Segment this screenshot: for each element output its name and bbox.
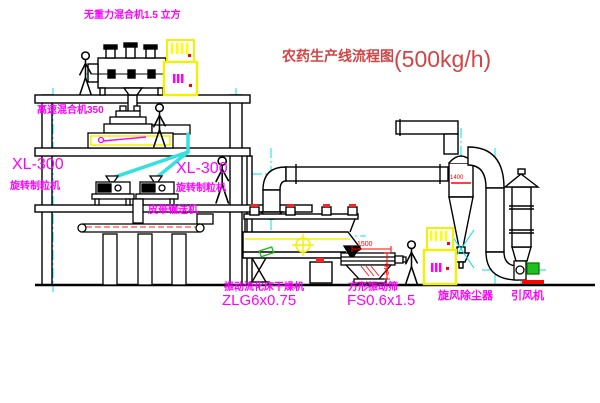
label-dryer-model: ZLG6x0.75 xyxy=(222,293,296,308)
label-granulator-right-name: 旋转制粒机 xyxy=(176,184,226,194)
down-pipe xyxy=(468,147,518,280)
fan-base xyxy=(522,280,544,284)
dim-cyclone-diameter: 1400 xyxy=(450,175,463,181)
title-capacity: (500kg/h) xyxy=(394,46,491,72)
control-cabinet-b xyxy=(424,228,456,284)
induced-draft-fan xyxy=(514,261,544,284)
fan-motor xyxy=(527,263,539,274)
label-high-speed-mixer: 高速混合机350 xyxy=(37,106,104,116)
dim-sieve-height: 340 xyxy=(384,263,391,275)
label-granulator-right-model: XL-300 xyxy=(176,161,228,177)
label-granulator-left-name: 旋转制粒机 xyxy=(10,182,60,192)
label-cyclone: 旋风除尘器 xyxy=(438,291,493,302)
dim-sieve-length: 1500 xyxy=(357,241,373,248)
flow-diagram-canvas: 农药生产线流程图(500kg/h) 无重力混合机1.5 立方 高速混合机350 … xyxy=(0,0,600,403)
cyclone-outlet-duct xyxy=(396,119,458,154)
control-cabinet-a xyxy=(164,40,197,95)
label-belt-conveyor: 皮带输送机 xyxy=(148,206,198,216)
vibrating-sieve xyxy=(341,246,406,283)
granulator-left xyxy=(92,176,134,205)
drop-duct xyxy=(133,199,143,223)
label-sieve-model: FS0.6x1.5 xyxy=(347,293,415,308)
label-gravity-mixer: 无重力混合机1.5 立方 xyxy=(84,11,181,21)
diagram-title: 农药生产线流程图(500kg/h) xyxy=(282,46,491,73)
belt-conveyor xyxy=(78,214,213,285)
fluid-bed-dryer xyxy=(243,204,361,285)
worker-4 xyxy=(406,241,417,284)
label-fan: 引风机 xyxy=(511,291,544,302)
label-granulator-left-model: XL-300 xyxy=(12,157,64,173)
exhaust-stack xyxy=(505,169,538,261)
title-text: 农药生产线流程图 xyxy=(282,48,394,64)
